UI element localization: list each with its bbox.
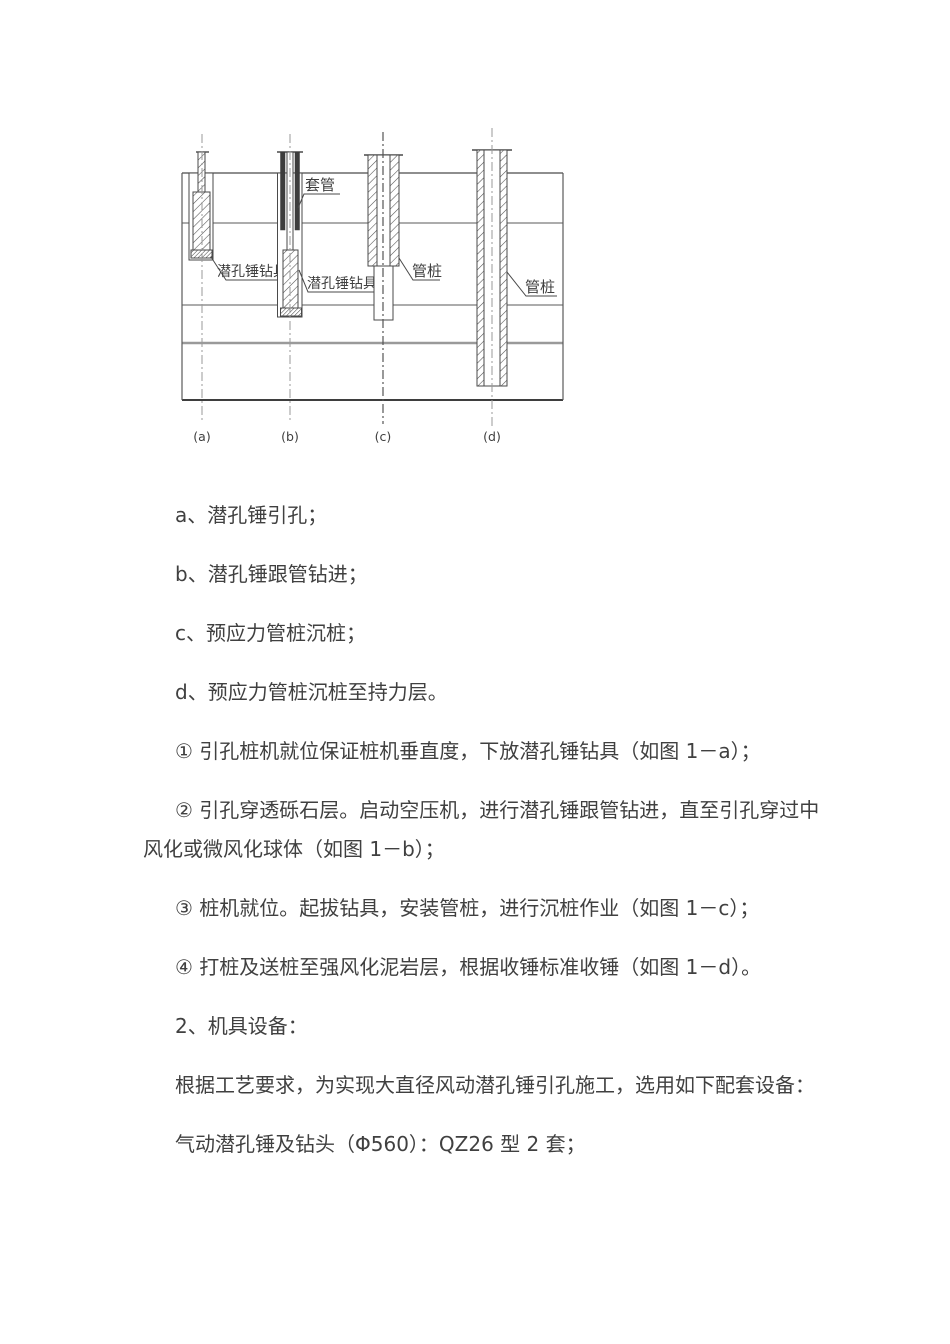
paragraph: ② 引孔穿透砾石层。启动空压机，进行潜孔锤跟管钻进，直至引孔穿过中 风化或微风化… — [143, 791, 843, 869]
caption-b: (b) — [281, 429, 299, 444]
stage-c-group: 管桩 — [364, 155, 442, 320]
casing-wall-left — [281, 152, 286, 230]
pile-wall-right-c — [390, 155, 399, 266]
paragraph-line: b、潜孔锤跟管钻进； — [143, 555, 843, 594]
pile-wall-left-d — [477, 150, 484, 386]
caption-a: (a) — [193, 429, 210, 444]
casing-label: 套管 — [305, 176, 335, 194]
paragraph: ① 引孔桩机就位保证桩机垂直度，下放潜孔锤钻具（如图 1－a）； — [143, 732, 843, 771]
stage-a-group: 潜孔锤钻具 — [189, 152, 287, 280]
section-heading: 2、机具设备： — [143, 1007, 843, 1046]
paragraph: 气动潜孔锤及钻头（Φ560）：QZ26 型 2 套； — [143, 1125, 843, 1164]
caption-d: (d) — [483, 429, 501, 444]
pile-diagram-svg: 潜孔锤钻具 套管 潜孔锤钻具 管桩 管桩 — [0, 0, 950, 470]
pipe-pile-label-c: 管桩 — [412, 262, 442, 280]
paragraph: ③ 桩机就位。起拔钻具，安装管桩，进行沉桩作业（如图 1－c）； — [143, 889, 843, 928]
drill-tool-label-b: 潜孔锤钻具 — [307, 276, 377, 292]
paragraph: 根据工艺要求，为实现大直径风动潜孔锤引孔施工，选用如下配套设备： — [143, 1066, 843, 1105]
paragraph-line: d、预应力管桩沉桩至持力层。 — [143, 673, 843, 712]
pile-wall-left-c — [368, 155, 377, 266]
paragraph: c、预应力管桩沉桩； — [143, 614, 843, 653]
paragraph: b、潜孔锤跟管钻进； — [143, 555, 843, 594]
paragraph-line: ① 引孔桩机就位保证桩机垂直度，下放潜孔锤钻具（如图 1－a）； — [143, 732, 843, 771]
paragraph-line: 根据工艺要求，为实现大直径风动潜孔锤引孔施工，选用如下配套设备： — [143, 1066, 843, 1105]
stage-d-group: 管桩 — [472, 150, 557, 386]
casing-wall-right — [295, 152, 300, 230]
stage-b-group: 套管 潜孔锤钻具 — [277, 152, 377, 317]
drill-bit-b — [281, 308, 302, 316]
paragraph-line: c、预应力管桩沉桩； — [143, 614, 843, 653]
caption-c: (c) — [375, 429, 392, 444]
paragraph-line: ② 引孔穿透砾石层。启动空压机，进行潜孔锤跟管钻进，直至引孔穿过中 — [143, 791, 843, 830]
paragraph-line: 风化或微风化球体（如图 1－b）； — [143, 830, 843, 869]
paragraph-line: 气动潜孔锤及钻头（Φ560）：QZ26 型 2 套； — [143, 1125, 843, 1164]
drill-tool-label-a: 潜孔锤钻具 — [217, 264, 287, 280]
construction-sequence-figure: 潜孔锤钻具 套管 潜孔锤钻具 管桩 管桩 — [0, 0, 950, 470]
pipe-pile-label-d: 管桩 — [525, 278, 555, 296]
paragraph: d、预应力管桩沉桩至持力层。 — [143, 673, 843, 712]
paragraph: a、潜孔锤引孔； — [143, 496, 843, 535]
paragraph: ④ 打桩及送桩至强风化泥岩层，根据收锤标准收锤（如图 1－d）。 — [143, 948, 843, 987]
drill-rod-b — [287, 152, 293, 250]
document-body: a、潜孔锤引孔； b、潜孔锤跟管钻进； c、预应力管桩沉桩； d、预应力管桩沉桩… — [143, 496, 843, 1184]
paragraph-line: a、潜孔锤引孔； — [143, 496, 843, 535]
paragraph-line: ④ 打桩及送桩至强风化泥岩层，根据收锤标准收锤（如图 1－d）。 — [143, 948, 843, 987]
subfigure-captions: (a) (b) (c) (d) — [193, 429, 501, 444]
leader-line — [298, 194, 340, 208]
pile-wall-right-d — [500, 150, 507, 386]
paragraph-line: ③ 桩机就位。起拔钻具，安装管桩，进行沉桩作业（如图 1－c）； — [143, 889, 843, 928]
paragraph-line: 2、机具设备： — [143, 1007, 843, 1046]
